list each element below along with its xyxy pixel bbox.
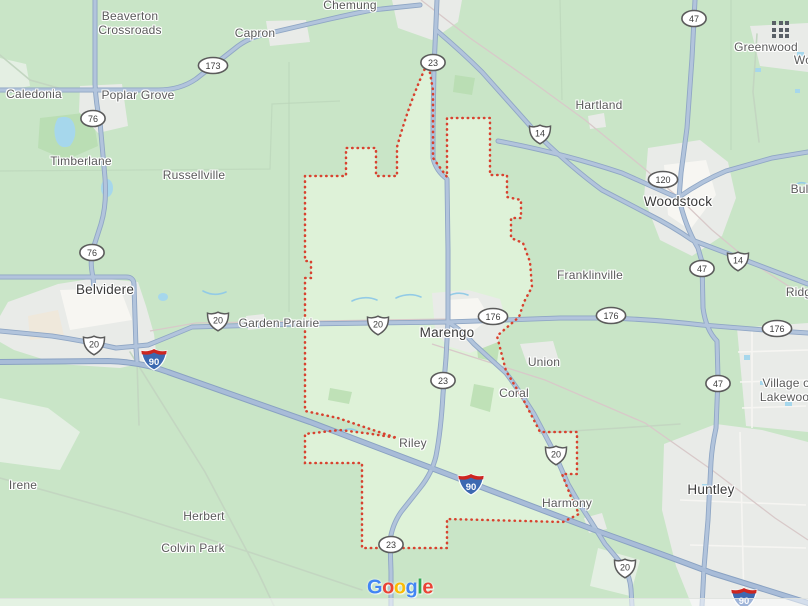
google-logo-letter: o (382, 577, 394, 599)
google-logo-letter: e (422, 577, 433, 599)
map-canvas[interactable]: 173 76 76 23 23 23 120 47 47 47 176 176 … (0, 0, 808, 606)
google-logo-letter: o (394, 577, 406, 599)
attribution-bar (0, 598, 808, 606)
google-logo-letter: G (367, 577, 382, 599)
map-base-layer (0, 0, 808, 606)
google-logo[interactable]: Google (367, 577, 433, 600)
apps-grid-icon[interactable] (772, 21, 789, 38)
google-logo-letter: g (406, 577, 418, 599)
